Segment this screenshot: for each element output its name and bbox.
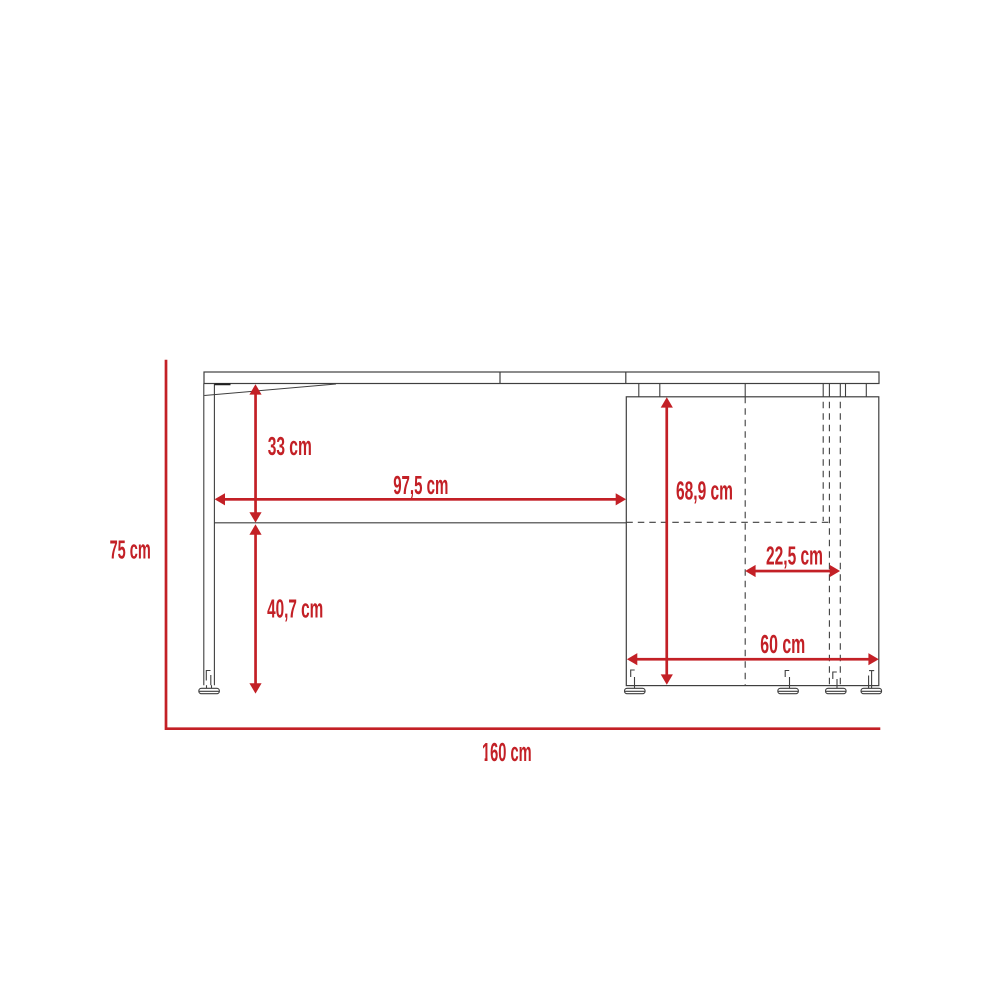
svg-text:68,9 cm: 68,9 cm xyxy=(676,477,733,505)
svg-text:60 cm: 60 cm xyxy=(760,631,805,659)
svg-text:97,5 cm: 97,5 cm xyxy=(393,472,448,500)
svg-text:75 cm: 75 cm xyxy=(110,537,151,565)
svg-text:160 cm: 160 cm xyxy=(482,739,532,767)
svg-text:33 cm: 33 cm xyxy=(268,433,312,461)
svg-text:22,5 cm: 22,5 cm xyxy=(766,543,823,571)
svg-text:40,7 cm: 40,7 cm xyxy=(267,595,323,623)
